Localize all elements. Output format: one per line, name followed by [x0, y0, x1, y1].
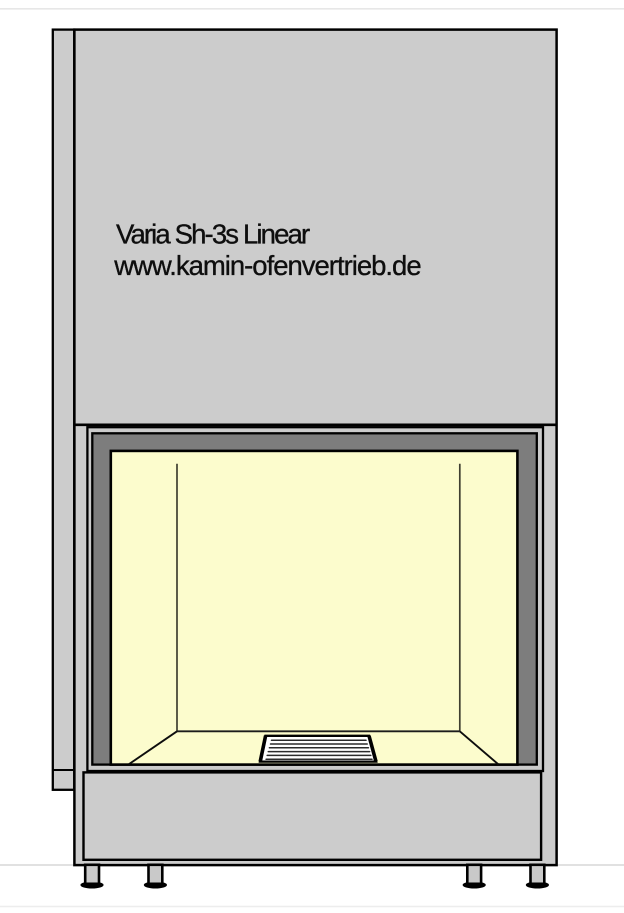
- svg-text:Varia Sh-3s Linear: Varia Sh-3s Linear: [116, 219, 310, 250]
- svg-text:www.kamin-ofenvertrieb.de: www.kamin-ofenvertrieb.de: [113, 250, 421, 281]
